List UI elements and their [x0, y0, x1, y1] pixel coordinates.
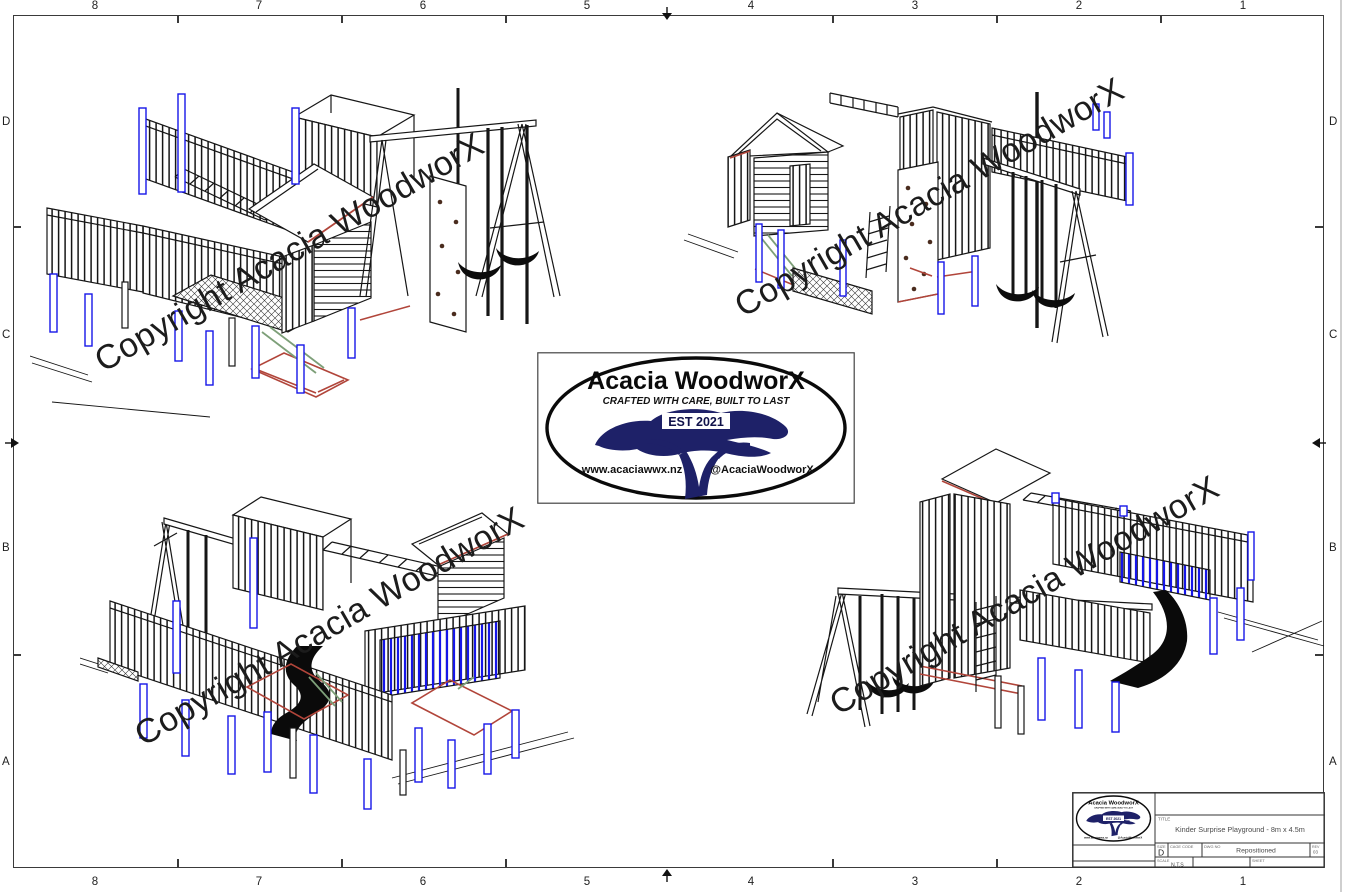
isometric-view-bottom-right: Copyright Acacia WoodworX: [790, 440, 1335, 775]
grid-row-label: B: [2, 542, 10, 554]
zone-tick: [996, 859, 998, 867]
logo-website: www.acaciawwx.nz: [581, 464, 683, 476]
grid-col-label: 5: [584, 0, 590, 12]
zone-tick: [177, 15, 179, 23]
zone-tick: [341, 15, 343, 23]
grid-row-label: C: [1329, 329, 1337, 341]
grid-col-label: 6: [420, 0, 426, 12]
logo-website: www.acaciawwx.nz: [1084, 836, 1108, 840]
logo-tagline: CRAFTED WITH CARE, BUILT TO LAST: [603, 396, 791, 407]
grid-row-label: A: [2, 756, 10, 768]
logo-social-handle: @AcaciaWoodworX: [710, 464, 814, 476]
logo-tagline: CRAFTED WITH CARE, BUILT TO LAST: [1094, 808, 1134, 810]
center-mark-arrow-left-icon: [5, 436, 21, 450]
isometric-view-top-right: Copyright Acacia WoodworX: [680, 62, 1320, 362]
scale-value: N.T.S: [1171, 863, 1184, 869]
grid-col-label: 8: [92, 876, 98, 888]
grid-col-label: 8: [92, 0, 98, 12]
zone-tick: [1160, 15, 1162, 23]
logo-brand: Acacia WoodworX: [1088, 801, 1139, 807]
center-mark-arrow-bottom-icon: [659, 869, 675, 883]
grid-col-label: 4: [748, 876, 754, 888]
zone-tick: [505, 859, 507, 867]
timber-posts: [995, 676, 1024, 734]
grid-row-label: C: [2, 329, 10, 341]
logo-brand: Acacia WoodworX: [587, 367, 805, 395]
grid-row-label: D: [2, 116, 10, 128]
dwg-no-value: Repositioned: [1236, 848, 1276, 855]
zone-tick: [996, 15, 998, 23]
logo-established: EST 2021: [1106, 817, 1121, 821]
grid-row-label: D: [1329, 116, 1337, 128]
ground-lines: [684, 234, 738, 258]
page-edge-shadow: [1340, 0, 1342, 892]
company-logo: Acacia WoodworX CRAFTED WITH CARE, BUILT…: [537, 352, 855, 504]
grid-col-label: 7: [256, 876, 262, 888]
zone-tick: [505, 15, 507, 23]
grid-col-label: 2: [1076, 0, 1082, 12]
zone-tick: [832, 859, 834, 867]
grid-col-label: 2: [1076, 876, 1082, 888]
logo-social-handle: @AcaciaWoodworX: [1118, 836, 1143, 840]
sheet-label: SHEET: [1252, 859, 1265, 863]
grid-col-label: 5: [584, 876, 590, 888]
dwg-no-label: DWG NO: [1204, 844, 1220, 849]
ground-lines: [1218, 612, 1324, 652]
logo-established: EST 2021: [668, 415, 724, 429]
scale-label: SCALE: [1157, 859, 1170, 863]
grid-col-label: 1: [1240, 876, 1246, 888]
grid-col-label: 3: [912, 0, 918, 12]
grid-col-label: 1: [1240, 0, 1246, 12]
center-mark-arrow-top-icon: [659, 7, 675, 21]
bridge: [830, 93, 898, 117]
title-label: TITLE: [1158, 817, 1170, 822]
grid-col-label: 4: [748, 0, 754, 12]
zone-tick: [341, 859, 343, 867]
zone-tick: [13, 654, 21, 656]
title-block: Acacia WoodworX CRAFTED WITH CARE, BUILT…: [1072, 792, 1325, 868]
grid-col-label: 7: [256, 0, 262, 12]
grid-col-label: 6: [420, 876, 426, 888]
zone-tick: [13, 226, 21, 228]
drawing-title: Kinder Surprise Playground - 8m x 4.5m: [1175, 825, 1305, 834]
drawing-sheet: 8 7 6 5 4 3 2 1 8 7 6 5 4 3 2 1 D C B A …: [0, 0, 1346, 892]
zone-tick: [177, 859, 179, 867]
size-value: D: [1158, 848, 1164, 858]
rev-value: 03: [1313, 850, 1318, 855]
cage-code-label: CAGE CODE: [1170, 844, 1194, 849]
grid-col-label: 3: [912, 876, 918, 888]
zone-tick: [832, 15, 834, 23]
isometric-view-bottom-left: Copyright Acacia WoodworX: [80, 488, 710, 818]
title-block-logo: Acacia WoodworX CRAFTED WITH CARE, BUILT…: [1077, 796, 1151, 841]
rev-label: REV: [1312, 845, 1320, 849]
